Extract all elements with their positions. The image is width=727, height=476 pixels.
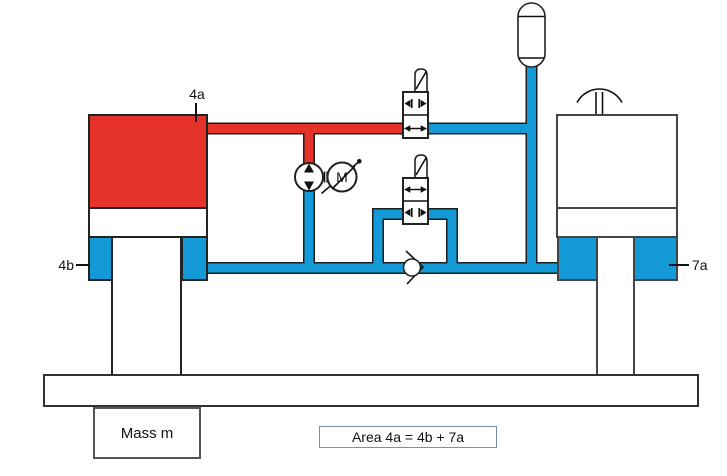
mass-label: Mass m [121,425,174,442]
main-cylinder-piston [88,207,208,238]
assist-cylinder-upper-chamber [556,114,678,209]
label-7a: 7a [692,257,722,273]
label-4b: 4b [46,257,74,273]
label-4a: 4a [183,86,211,102]
accumulator-icon [518,3,545,67]
check-valve-icon [404,251,424,284]
shutoff-valve-open-icon [403,69,428,138]
main-cylinder-rod-chamber-left [88,236,113,281]
area-formula-box: Area 4a = 4b + 7a [319,426,497,448]
shutoff-valve-closed-icon [403,155,428,224]
hydraulic-circuit-diagram: M [0,0,727,476]
platform [43,374,699,407]
label-4b-tick [76,264,90,266]
label-7a-tick [669,264,689,266]
assist-cylinder-rod [596,238,635,374]
assist-cylinder-rod-chamber-right [633,236,678,281]
bidirectional-pump-icon [295,163,323,191]
main-cylinder-cap-chamber [88,114,208,209]
assist-cylinder-rod-chamber-left [557,236,598,281]
main-cylinder-rod-chamber-right [181,236,208,281]
pipe-outlines [207,64,560,268]
hand-lever-icon [577,89,622,114]
label-4a-tick [195,103,197,122]
electric-motor-icon: M [322,159,362,194]
area-formula-label: Area 4a = 4b + 7a [352,429,464,445]
mass-box: Mass m [93,407,201,459]
motor-label: M [336,169,348,185]
assist-cylinder-piston [556,207,678,238]
main-cylinder-rod [111,238,182,374]
